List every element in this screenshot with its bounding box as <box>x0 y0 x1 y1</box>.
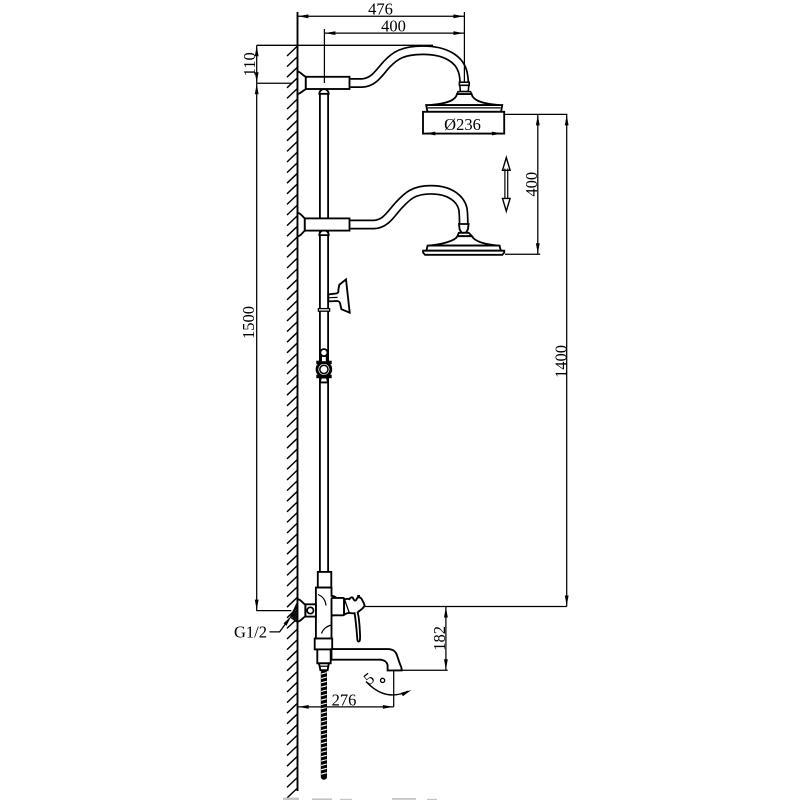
svg-text:400: 400 <box>522 172 541 197</box>
svg-text:1500: 1500 <box>239 306 258 339</box>
svg-text:276: 276 <box>332 690 357 709</box>
svg-text:110: 110 <box>240 52 259 76</box>
svg-text:400: 400 <box>381 16 406 35</box>
svg-text:Ø236: Ø236 <box>444 115 481 134</box>
svg-text:1400: 1400 <box>551 345 570 378</box>
svg-text:G1/2: G1/2 <box>234 622 267 641</box>
svg-text:182: 182 <box>430 626 449 651</box>
